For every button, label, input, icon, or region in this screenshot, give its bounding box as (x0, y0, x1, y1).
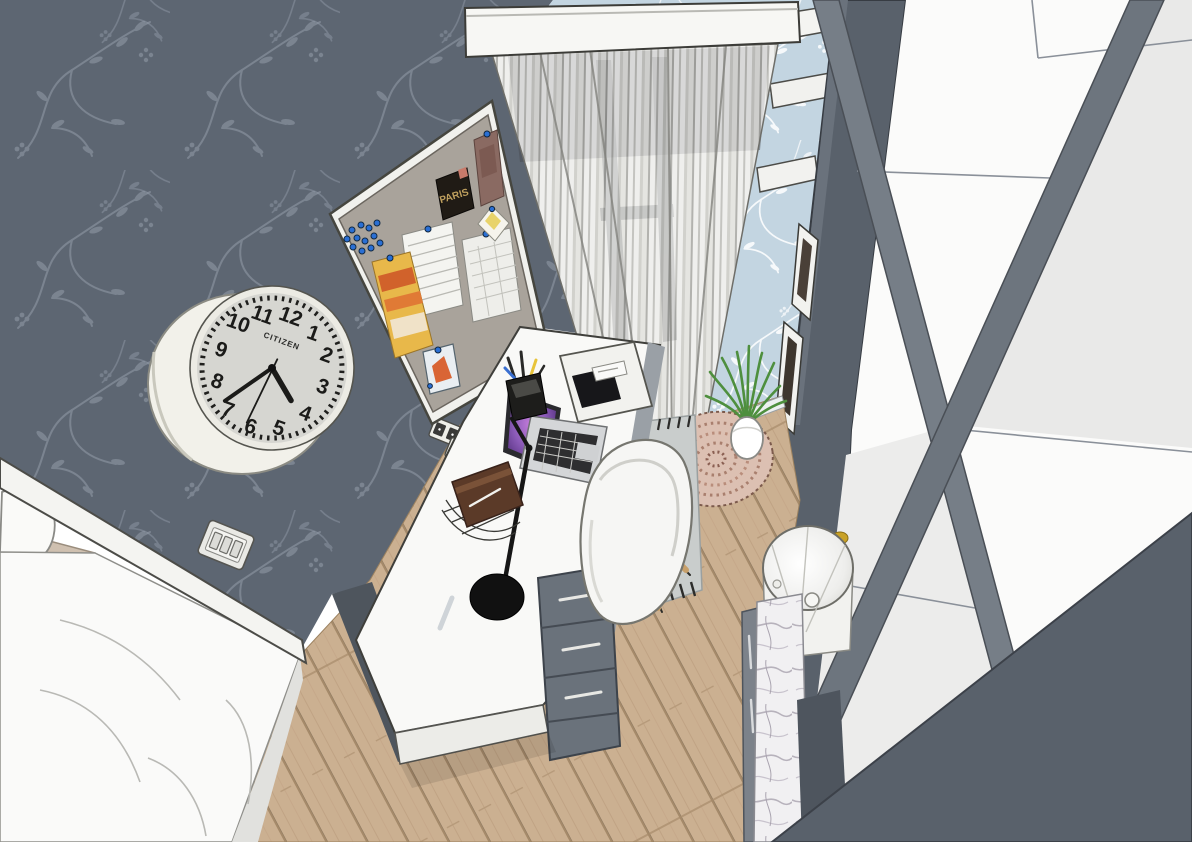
postcard (423, 344, 460, 394)
push-pin (425, 226, 431, 232)
push-pin (387, 255, 393, 261)
push-pin (489, 206, 494, 211)
basket-hole-small (773, 580, 781, 588)
note-sheet-right (462, 228, 521, 322)
push-pin (435, 347, 441, 353)
lamp-head (470, 574, 524, 620)
pen-cup-body (506, 373, 547, 421)
push-pin (428, 384, 433, 389)
lamp-joint (526, 445, 533, 452)
basket-hole (805, 593, 819, 607)
push-pin (484, 131, 490, 137)
plant-pot (731, 417, 763, 459)
room-render: 12 1 2 3 4 5 6 7 8 9 10 11 CITIZEN PARIS (0, 0, 1192, 842)
